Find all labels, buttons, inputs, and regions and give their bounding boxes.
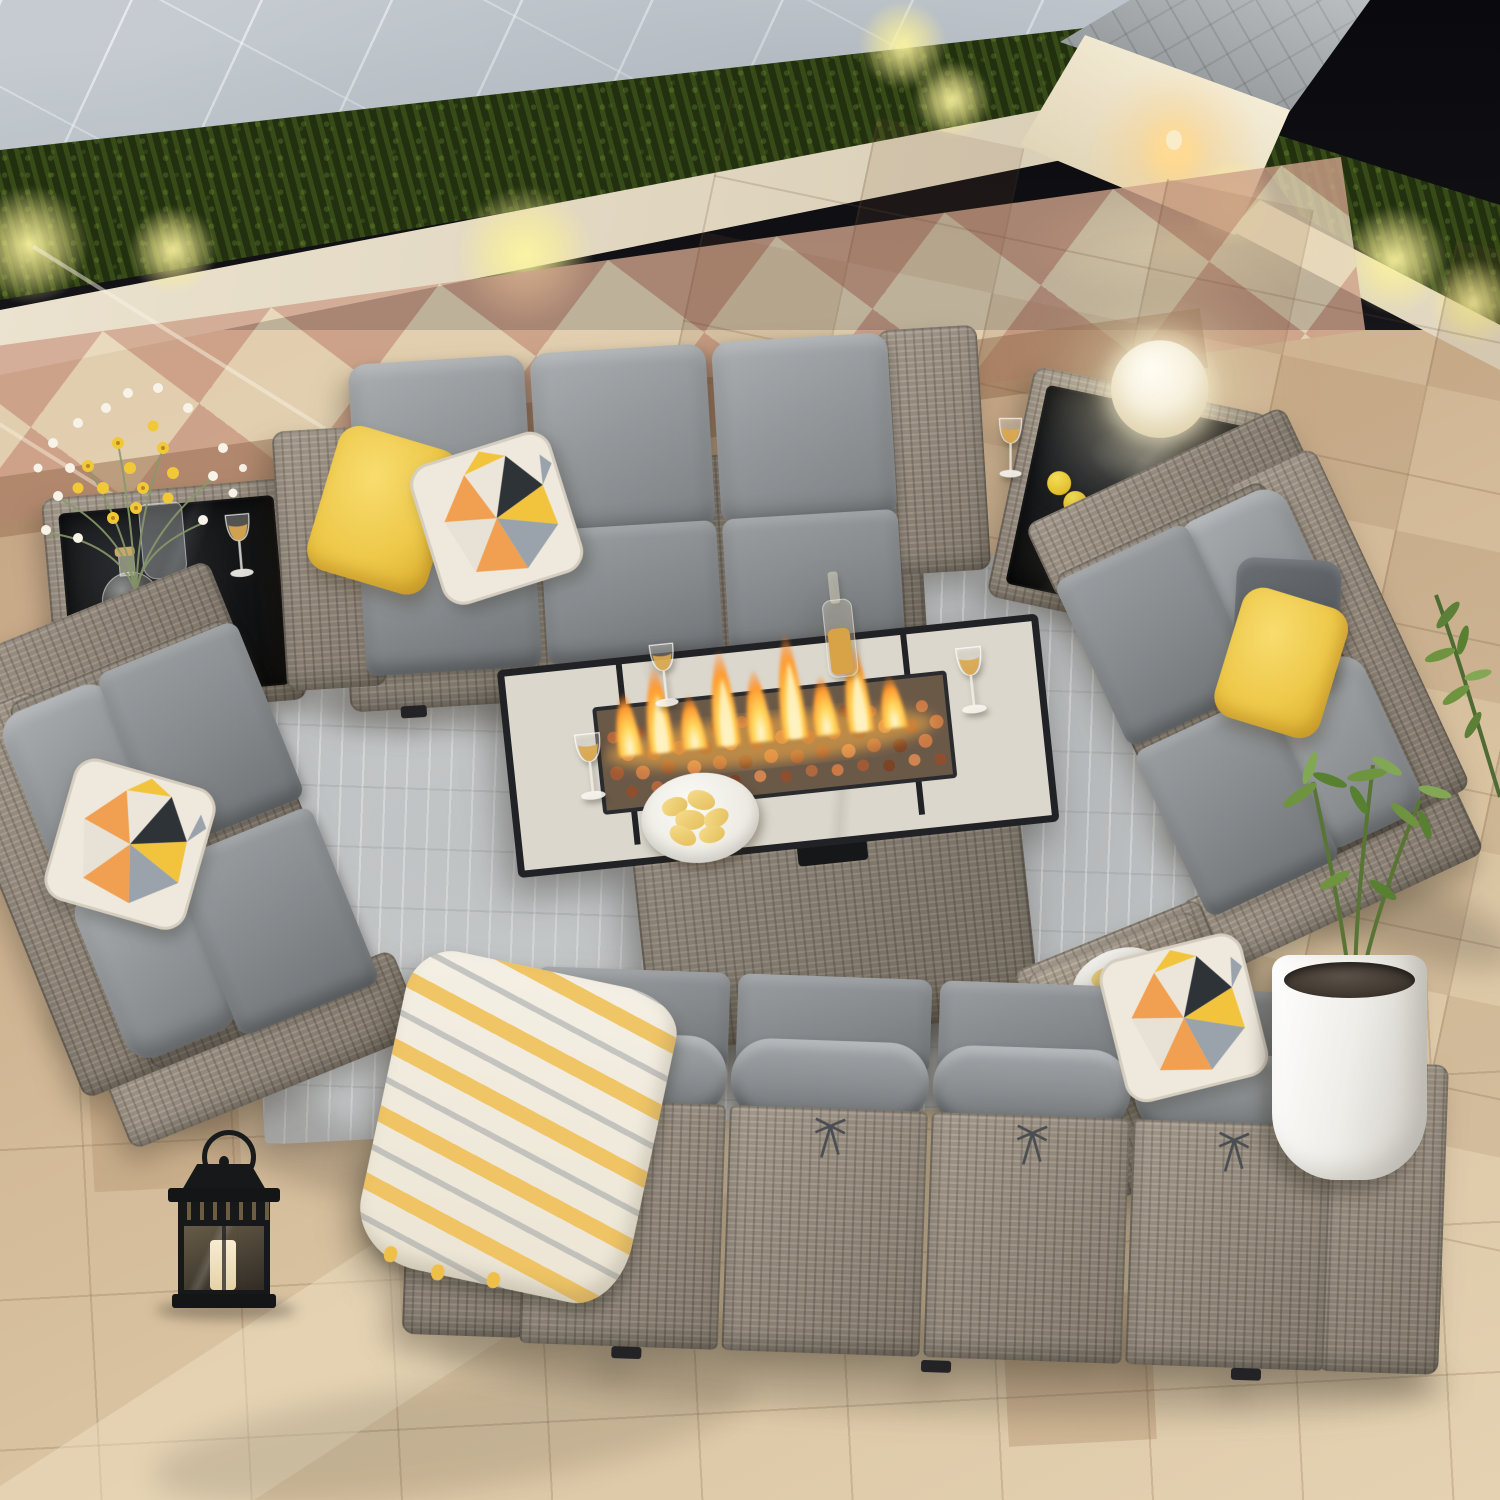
blanket-tassel	[383, 1245, 399, 1263]
sofa-foot	[400, 705, 427, 719]
pot-mouth	[1284, 962, 1415, 998]
lantern-roof-bar	[168, 1188, 280, 1202]
blanket-tassel	[485, 1271, 501, 1289]
sconce-light	[1166, 130, 1182, 150]
lantern-mullion	[222, 1226, 226, 1290]
wine-glass	[994, 410, 1028, 484]
sofa-foot	[921, 1360, 951, 1373]
candle-lantern	[168, 1158, 280, 1313]
planter-pot	[1272, 955, 1427, 1180]
patio-scene	[0, 0, 1500, 1500]
lantern-base	[172, 1294, 276, 1308]
hedge-light-glow	[128, 205, 218, 295]
back-cushion	[711, 332, 898, 527]
edge-plant-leaves	[1418, 545, 1500, 805]
cushion-tie-bow	[1216, 1130, 1252, 1177]
lantern-body	[178, 1220, 270, 1296]
cushion-tie-bow	[812, 1116, 848, 1163]
cushion-tie-bow	[1014, 1123, 1050, 1170]
lantern-grille	[178, 1202, 270, 1220]
sofa-foot	[1231, 1368, 1261, 1381]
decanter-wine	[827, 627, 854, 675]
sofa-foot	[611, 1346, 641, 1359]
